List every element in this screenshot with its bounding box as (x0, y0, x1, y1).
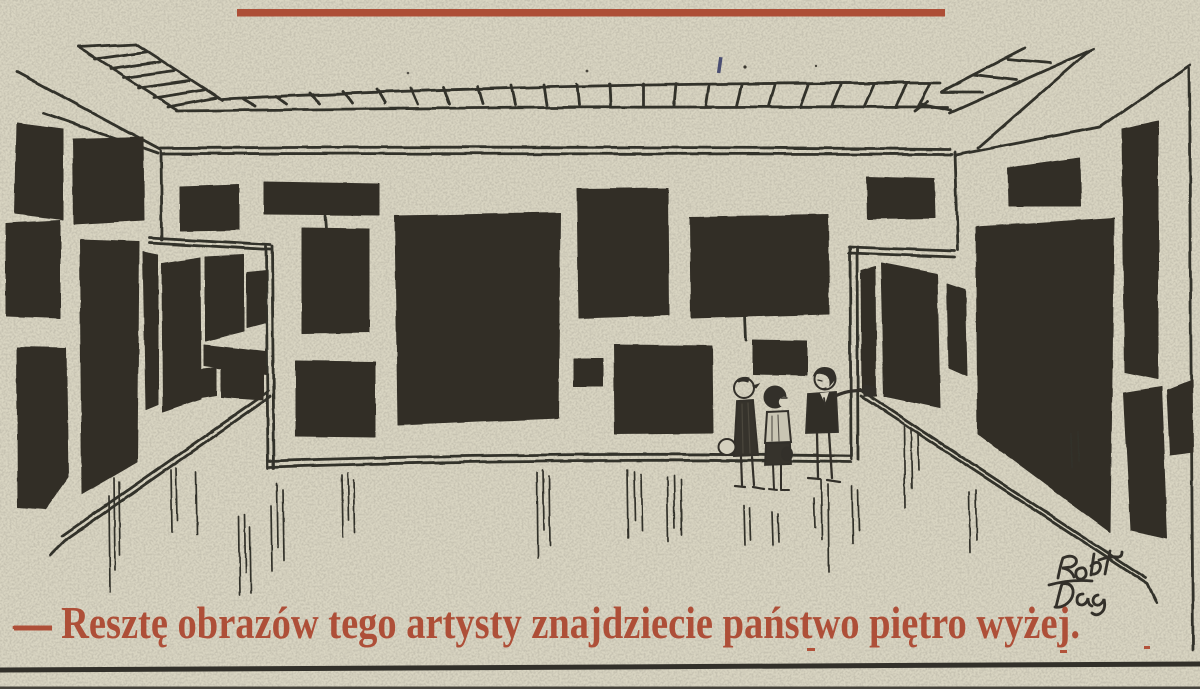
svg-text:— Resztę obrazów tego artysty: — Resztę obrazów tego artysty znajdzieci… (12, 598, 1080, 648)
